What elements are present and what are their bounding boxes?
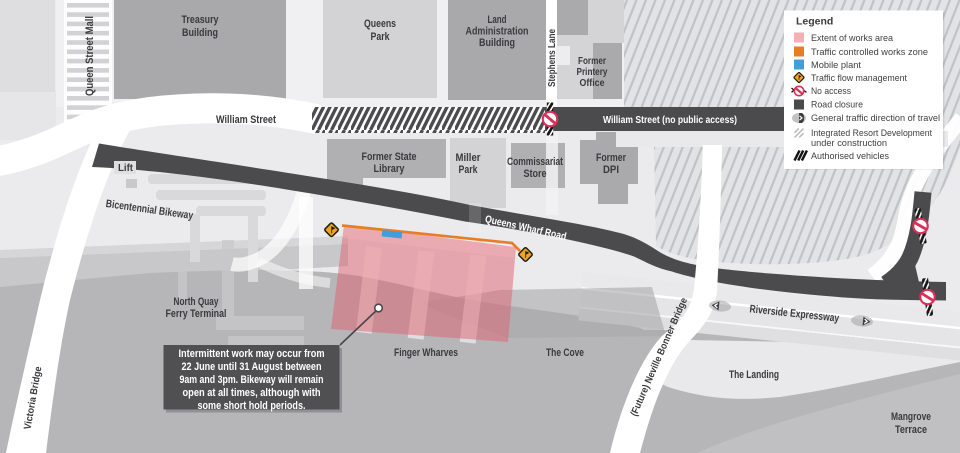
svg-text:Authorised vehicles: Authorised vehicles — [811, 151, 889, 161]
svg-text:Building: Building — [182, 27, 218, 39]
svg-text:William Street: William Street — [216, 114, 276, 126]
svg-text:Administration: Administration — [466, 26, 529, 38]
svg-text:Legend: Legend — [796, 16, 833, 28]
svg-text:General traffic direction of t: General traffic direction of travel — [811, 113, 940, 123]
svg-text:Library: Library — [374, 163, 406, 175]
svg-text:Road closure: Road closure — [811, 100, 863, 110]
svg-text:open at all times, although wi: open at all times, although with — [183, 387, 321, 399]
svg-text:Commissariat: Commissariat — [507, 156, 563, 168]
svg-text:Queen Street Mall: Queen Street Mall — [84, 16, 96, 96]
svg-text:Building: Building — [479, 37, 515, 49]
svg-text:DPI: DPI — [603, 164, 619, 176]
svg-text:William Street (no public acce: William Street (no public access) — [603, 114, 737, 126]
svg-text:Queens: Queens — [364, 18, 396, 30]
svg-text:The Landing: The Landing — [729, 369, 779, 381]
svg-text:some short hold periods.: some short hold periods. — [198, 400, 306, 412]
svg-text:Stephens Lane: Stephens Lane — [547, 29, 558, 87]
svg-text:Former State: Former State — [362, 151, 417, 163]
svg-text:Former: Former — [596, 152, 627, 164]
svg-text:under construction: under construction — [811, 138, 887, 148]
svg-text:Land: Land — [488, 14, 507, 26]
svg-text:Treasury: Treasury — [182, 14, 220, 26]
svg-text:Miller: Miller — [456, 152, 482, 164]
svg-text:Lift: Lift — [118, 163, 134, 174]
svg-text:Mangrove: Mangrove — [891, 411, 931, 423]
svg-text:Printery: Printery — [577, 67, 608, 78]
svg-text:Park: Park — [459, 164, 479, 176]
svg-text:North Quay: North Quay — [174, 296, 220, 308]
svg-text:No access: No access — [811, 86, 851, 96]
svg-text:Traffic flow management: Traffic flow management — [811, 73, 907, 83]
svg-text:Finger Wharves: Finger Wharves — [394, 347, 458, 359]
svg-text:22 June until 31 August betwee: 22 June until 31 August between — [182, 361, 322, 373]
svg-text:Intermittent work may occur fr: Intermittent work may occur from — [179, 348, 325, 360]
svg-text:9am and 3pm. Bikeway will rema: 9am and 3pm. Bikeway will remain — [180, 374, 324, 386]
svg-text:Extent of works area: Extent of works area — [811, 33, 894, 43]
svg-text:The Cove: The Cove — [546, 347, 584, 359]
svg-text:Terrace: Terrace — [895, 424, 927, 436]
svg-text:Integrated Resort Development: Integrated Resort Development — [811, 128, 932, 138]
svg-text:Ferry Terminal: Ferry Terminal — [166, 308, 227, 320]
svg-text:Former: Former — [578, 56, 606, 67]
svg-text:Store: Store — [524, 168, 547, 180]
svg-text:Office: Office — [580, 78, 605, 89]
svg-text:Mobile plant: Mobile plant — [811, 60, 861, 70]
svg-text:Park: Park — [371, 31, 391, 43]
svg-text:Traffic controlled works zone: Traffic controlled works zone — [811, 47, 928, 57]
